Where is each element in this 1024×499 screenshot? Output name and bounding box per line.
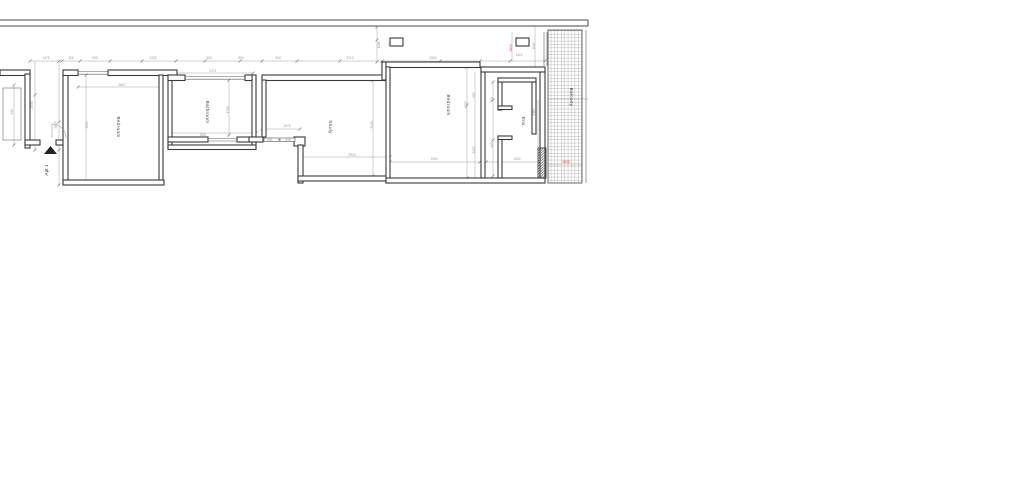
dimension-label: 1475: [42, 56, 49, 60]
wall-segment: [168, 145, 256, 150]
wall-segment: [168, 75, 185, 81]
wall-segment: [168, 137, 208, 142]
dimension-label: 2935: [370, 121, 374, 128]
wall-segment: [25, 140, 40, 145]
ensuite-wall: [532, 82, 536, 134]
hatched-wall-section: [538, 148, 546, 178]
apartment-label: Apt 1: [44, 164, 50, 176]
dimension-label: 1790: [226, 106, 230, 113]
ensuite-wall: [498, 106, 512, 110]
ensuite-wall: [498, 78, 502, 110]
dimension-label: 2432: [149, 56, 156, 60]
wall-segment: [386, 178, 545, 183]
wall-segment: [108, 70, 177, 76]
wall-segment: [63, 70, 68, 185]
wall-segment: [159, 75, 163, 185]
dimension-label: 1000: [513, 157, 520, 161]
wall-segment: [249, 137, 263, 142]
red-dimension-label: 1500: [562, 160, 570, 164]
site-boundary: [0, 20, 588, 26]
room-label-ensuite: Ens.: [521, 117, 526, 128]
wall-segment: [386, 67, 390, 183]
ensuite-wall: [498, 78, 536, 82]
room-label-balcony: Balcony: [569, 88, 574, 107]
dimension-label: 800: [200, 133, 206, 137]
room-label-bedroom-2: Bedroom: [446, 94, 451, 115]
dimension-label: 300: [206, 56, 212, 60]
wall-segment: [382, 62, 480, 68]
dimension-labels: 1475 300 900 2432 300 900 900 3712 2900 …: [10, 41, 536, 161]
room-labels: Bedroom Bathroom Study Bedroom Ens. Balc…: [116, 88, 574, 138]
ensuite-wall: [498, 136, 502, 178]
wall-segment: [382, 62, 386, 80]
dimension-label: 900: [238, 56, 244, 60]
dimension-label: 451: [267, 138, 273, 142]
dimension-label: 4132: [464, 101, 468, 108]
dimension-label: 5875: [54, 121, 58, 128]
walls: [0, 38, 545, 185]
wall-segment: [262, 75, 390, 81]
red-dimension-label: 1500: [509, 44, 513, 52]
dimension-label: 2935: [30, 101, 34, 108]
dimension-label: 3110: [532, 108, 536, 115]
wall-segment: [262, 80, 266, 137]
dimension-label: 989: [472, 92, 476, 98]
wall-segment: [25, 74, 30, 148]
dimension-label: 300: [68, 56, 74, 60]
dimension-label: 1193: [472, 146, 476, 153]
dimension-label: 1530: [532, 42, 536, 49]
wall-segment: [481, 67, 545, 72]
dimension-label: 610: [388, 41, 392, 47]
wall-segment: [481, 67, 485, 178]
dimension-label: 2933: [348, 153, 355, 157]
apartment-entry-marker: Apt 1: [44, 146, 57, 176]
dimension-label: 900: [275, 56, 281, 60]
dimension-label: 405: [490, 142, 494, 148]
dimension-label: 2900: [429, 56, 436, 60]
room-label-bathroom: Bathroom: [205, 101, 210, 124]
wall-segment: [63, 70, 78, 76]
room-label-study: Study: [328, 120, 333, 134]
floor-plan-drawing: Bedroom Bathroom Study Bedroom Ens. Balc…: [0, 0, 1024, 499]
room-label-bedroom-1: Bedroom: [116, 116, 121, 137]
entry-triangle-icon: [44, 146, 57, 154]
dimension-label: 416: [285, 138, 291, 142]
window-column: [516, 38, 529, 46]
dimension-label: 2667: [118, 83, 125, 87]
dimension-label: 2935: [85, 121, 89, 128]
dimension-label: 2171: [209, 69, 216, 73]
dimension-label: 718: [490, 97, 494, 103]
wall-segment: [298, 176, 390, 181]
wall-segment: [63, 180, 164, 185]
dimension-label: 3712: [346, 56, 353, 60]
ensuite-wall: [498, 136, 512, 140]
dimension-label: 1475: [283, 124, 290, 128]
dimension-label: 2900: [430, 157, 437, 161]
dimension-label: 1410: [515, 53, 522, 57]
dimension-label: 910: [10, 109, 14, 115]
dimension-label: 900: [92, 56, 98, 60]
dimension-label: 1193: [377, 41, 381, 48]
